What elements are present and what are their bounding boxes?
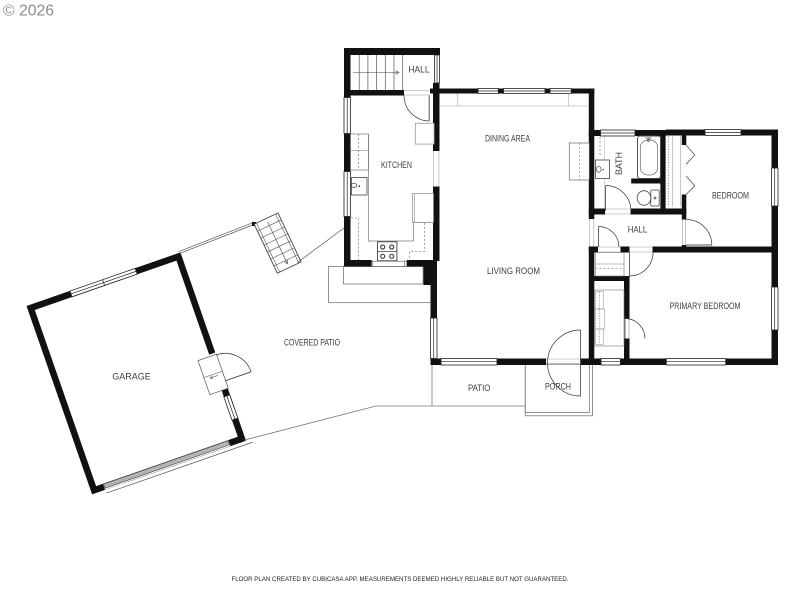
svg-text:GARAGE: GARAGE (112, 372, 151, 382)
svg-text:PRIMARY BEDROOM: PRIMARY BEDROOM (670, 301, 741, 311)
svg-text:BATH: BATH (614, 152, 624, 175)
svg-text:KITCHEN: KITCHEN (381, 160, 412, 170)
svg-text:LIVING ROOM: LIVING ROOM (487, 266, 540, 276)
svg-text:© 2026: © 2026 (3, 3, 54, 20)
svg-text:BEDROOM: BEDROOM (712, 190, 749, 200)
svg-text:PORCH: PORCH (545, 381, 571, 391)
svg-text:COVERED PATIO: COVERED PATIO (284, 337, 340, 347)
svg-text:PATIO: PATIO (468, 383, 491, 393)
svg-text:HALL: HALL (409, 65, 430, 75)
svg-text:FLOOR PLAN CREATED BY CUBICASA: FLOOR PLAN CREATED BY CUBICASA APP. MEAS… (232, 576, 569, 583)
svg-text:DINING AREA: DINING AREA (485, 134, 530, 144)
svg-text:HALL: HALL (628, 224, 648, 234)
